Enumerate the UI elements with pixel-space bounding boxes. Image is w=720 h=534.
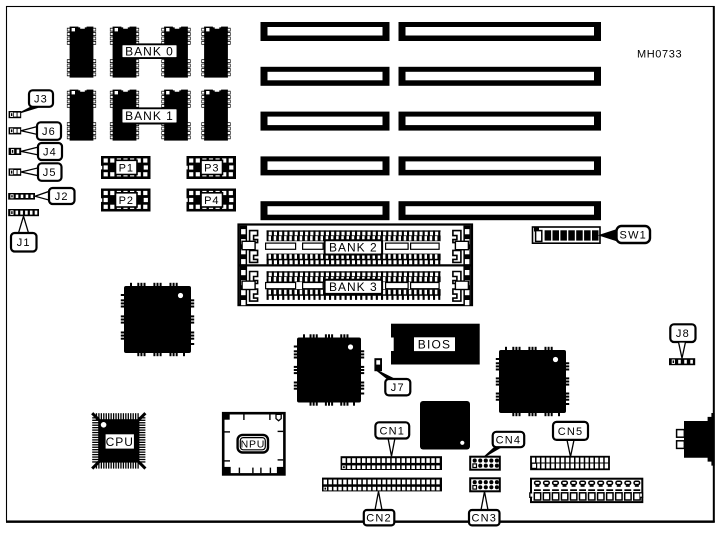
svg-text:CPU: CPU (106, 435, 134, 449)
svg-text:CN3: CN3 (471, 513, 497, 525)
svg-text:J6: J6 (42, 126, 56, 138)
svg-text:MH0733: MH0733 (637, 49, 682, 61)
svg-text:J5: J5 (43, 167, 57, 179)
svg-text:P4: P4 (204, 195, 219, 207)
svg-text:BANK 1: BANK 1 (125, 109, 174, 123)
svg-text:P2: P2 (119, 195, 134, 207)
svg-text:BIOS: BIOS (418, 338, 451, 352)
svg-text:J7: J7 (391, 382, 405, 394)
svg-text:CN2: CN2 (366, 513, 392, 525)
svg-text:SW1: SW1 (620, 229, 647, 241)
svg-text:P3: P3 (204, 162, 219, 174)
svg-text:J2: J2 (55, 191, 69, 203)
svg-text:P1: P1 (119, 162, 134, 174)
svg-text:CN1: CN1 (379, 425, 405, 437)
svg-text:J8: J8 (676, 328, 690, 340)
svg-text:BANK 3: BANK 3 (329, 280, 378, 294)
svg-text:NPU: NPU (241, 439, 266, 451)
svg-text:CN4: CN4 (496, 434, 522, 446)
svg-text:BANK 0: BANK 0 (125, 45, 174, 59)
svg-text:BANK 2: BANK 2 (329, 241, 378, 255)
svg-text:J4: J4 (43, 146, 57, 158)
svg-text:J3: J3 (34, 94, 48, 106)
svg-text:CN5: CN5 (558, 426, 584, 438)
svg-text:J1: J1 (17, 237, 31, 249)
